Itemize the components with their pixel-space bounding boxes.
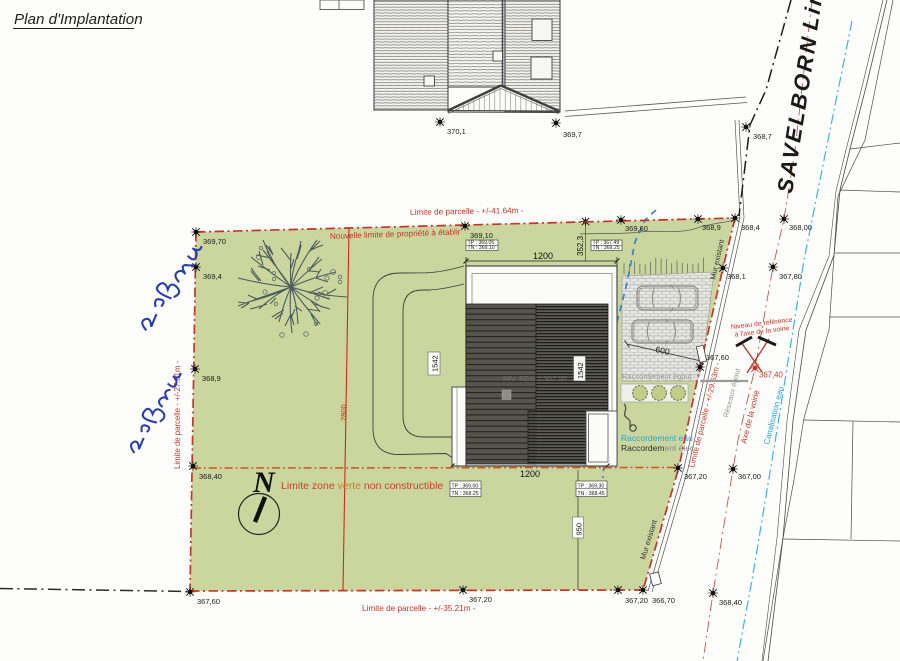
svg-text:367,20: 367,20 [469, 595, 492, 604]
svg-text:Raccordement égout: Raccordement égout [622, 372, 693, 381]
svg-text:368,9: 368,9 [202, 374, 221, 383]
svg-text:368,40: 368,40 [719, 598, 742, 607]
svg-text:368,40: 368,40 [199, 472, 222, 481]
svg-text:TP : 369.00: TP : 369.00 [452, 484, 479, 490]
svg-text:1200: 1200 [533, 251, 553, 261]
svg-text:368,7: 368,7 [753, 132, 772, 141]
svg-text:1542: 1542 [431, 355, 440, 372]
svg-text:352,3: 352,3 [576, 235, 585, 256]
svg-text:1200: 1200 [520, 469, 540, 479]
svg-text:367,20: 367,20 [684, 472, 707, 481]
svg-text:TN : 369.10: TN : 369.10 [468, 245, 495, 251]
svg-text:Raccordement élec: Raccordement élec [621, 443, 695, 453]
svg-text:368,9: 368,9 [702, 223, 721, 232]
svg-text:368,4: 368,4 [741, 223, 760, 232]
svg-text:367,60: 367,60 [706, 353, 729, 362]
svg-text:950: 950 [575, 523, 584, 536]
svg-text:TP : 369.30: TP : 369.30 [578, 484, 605, 490]
svg-text:370,1: 370,1 [447, 127, 466, 136]
svg-text:Plan d'Implantation: Plan d'Implantation [14, 11, 143, 28]
svg-text:367,60: 367,60 [197, 597, 220, 606]
svg-text:369,60: 369,60 [625, 224, 648, 233]
svg-text:367,80: 367,80 [779, 272, 802, 281]
svg-text:TN : 369.25: TN : 369.25 [593, 245, 620, 251]
svg-text:367,00: 367,00 [738, 472, 761, 481]
svg-text:TN : 368.45: TN : 368.45 [578, 491, 605, 497]
svg-text:TN : 368.25: TN : 368.25 [452, 491, 479, 497]
svg-text:366,70: 366,70 [652, 596, 675, 605]
svg-text:Raccordement eau: Raccordement eau [621, 433, 693, 443]
svg-text:Limite zone verte non construc: Limite zone verte non constructible [281, 480, 443, 492]
svg-text:NIV. RDC = 367.50: NIV. RDC = 367.50 [503, 374, 567, 383]
svg-text:367,20: 367,20 [625, 596, 648, 605]
svg-text:369,10: 369,10 [470, 231, 493, 240]
svg-text:369,4: 369,4 [203, 272, 222, 281]
svg-text:368,1: 368,1 [727, 272, 746, 281]
svg-text:368,00: 368,00 [789, 223, 812, 232]
svg-text:369,7: 369,7 [563, 130, 582, 139]
svg-text:Limite de parcelle - +/-35.21m: Limite de parcelle - +/-35.21m - [362, 604, 476, 613]
svg-text:367,40: 367,40 [759, 371, 784, 380]
svg-text:1542: 1542 [576, 362, 585, 379]
svg-text:2800: 2800 [339, 404, 348, 421]
svg-text:369,70: 369,70 [203, 237, 226, 246]
